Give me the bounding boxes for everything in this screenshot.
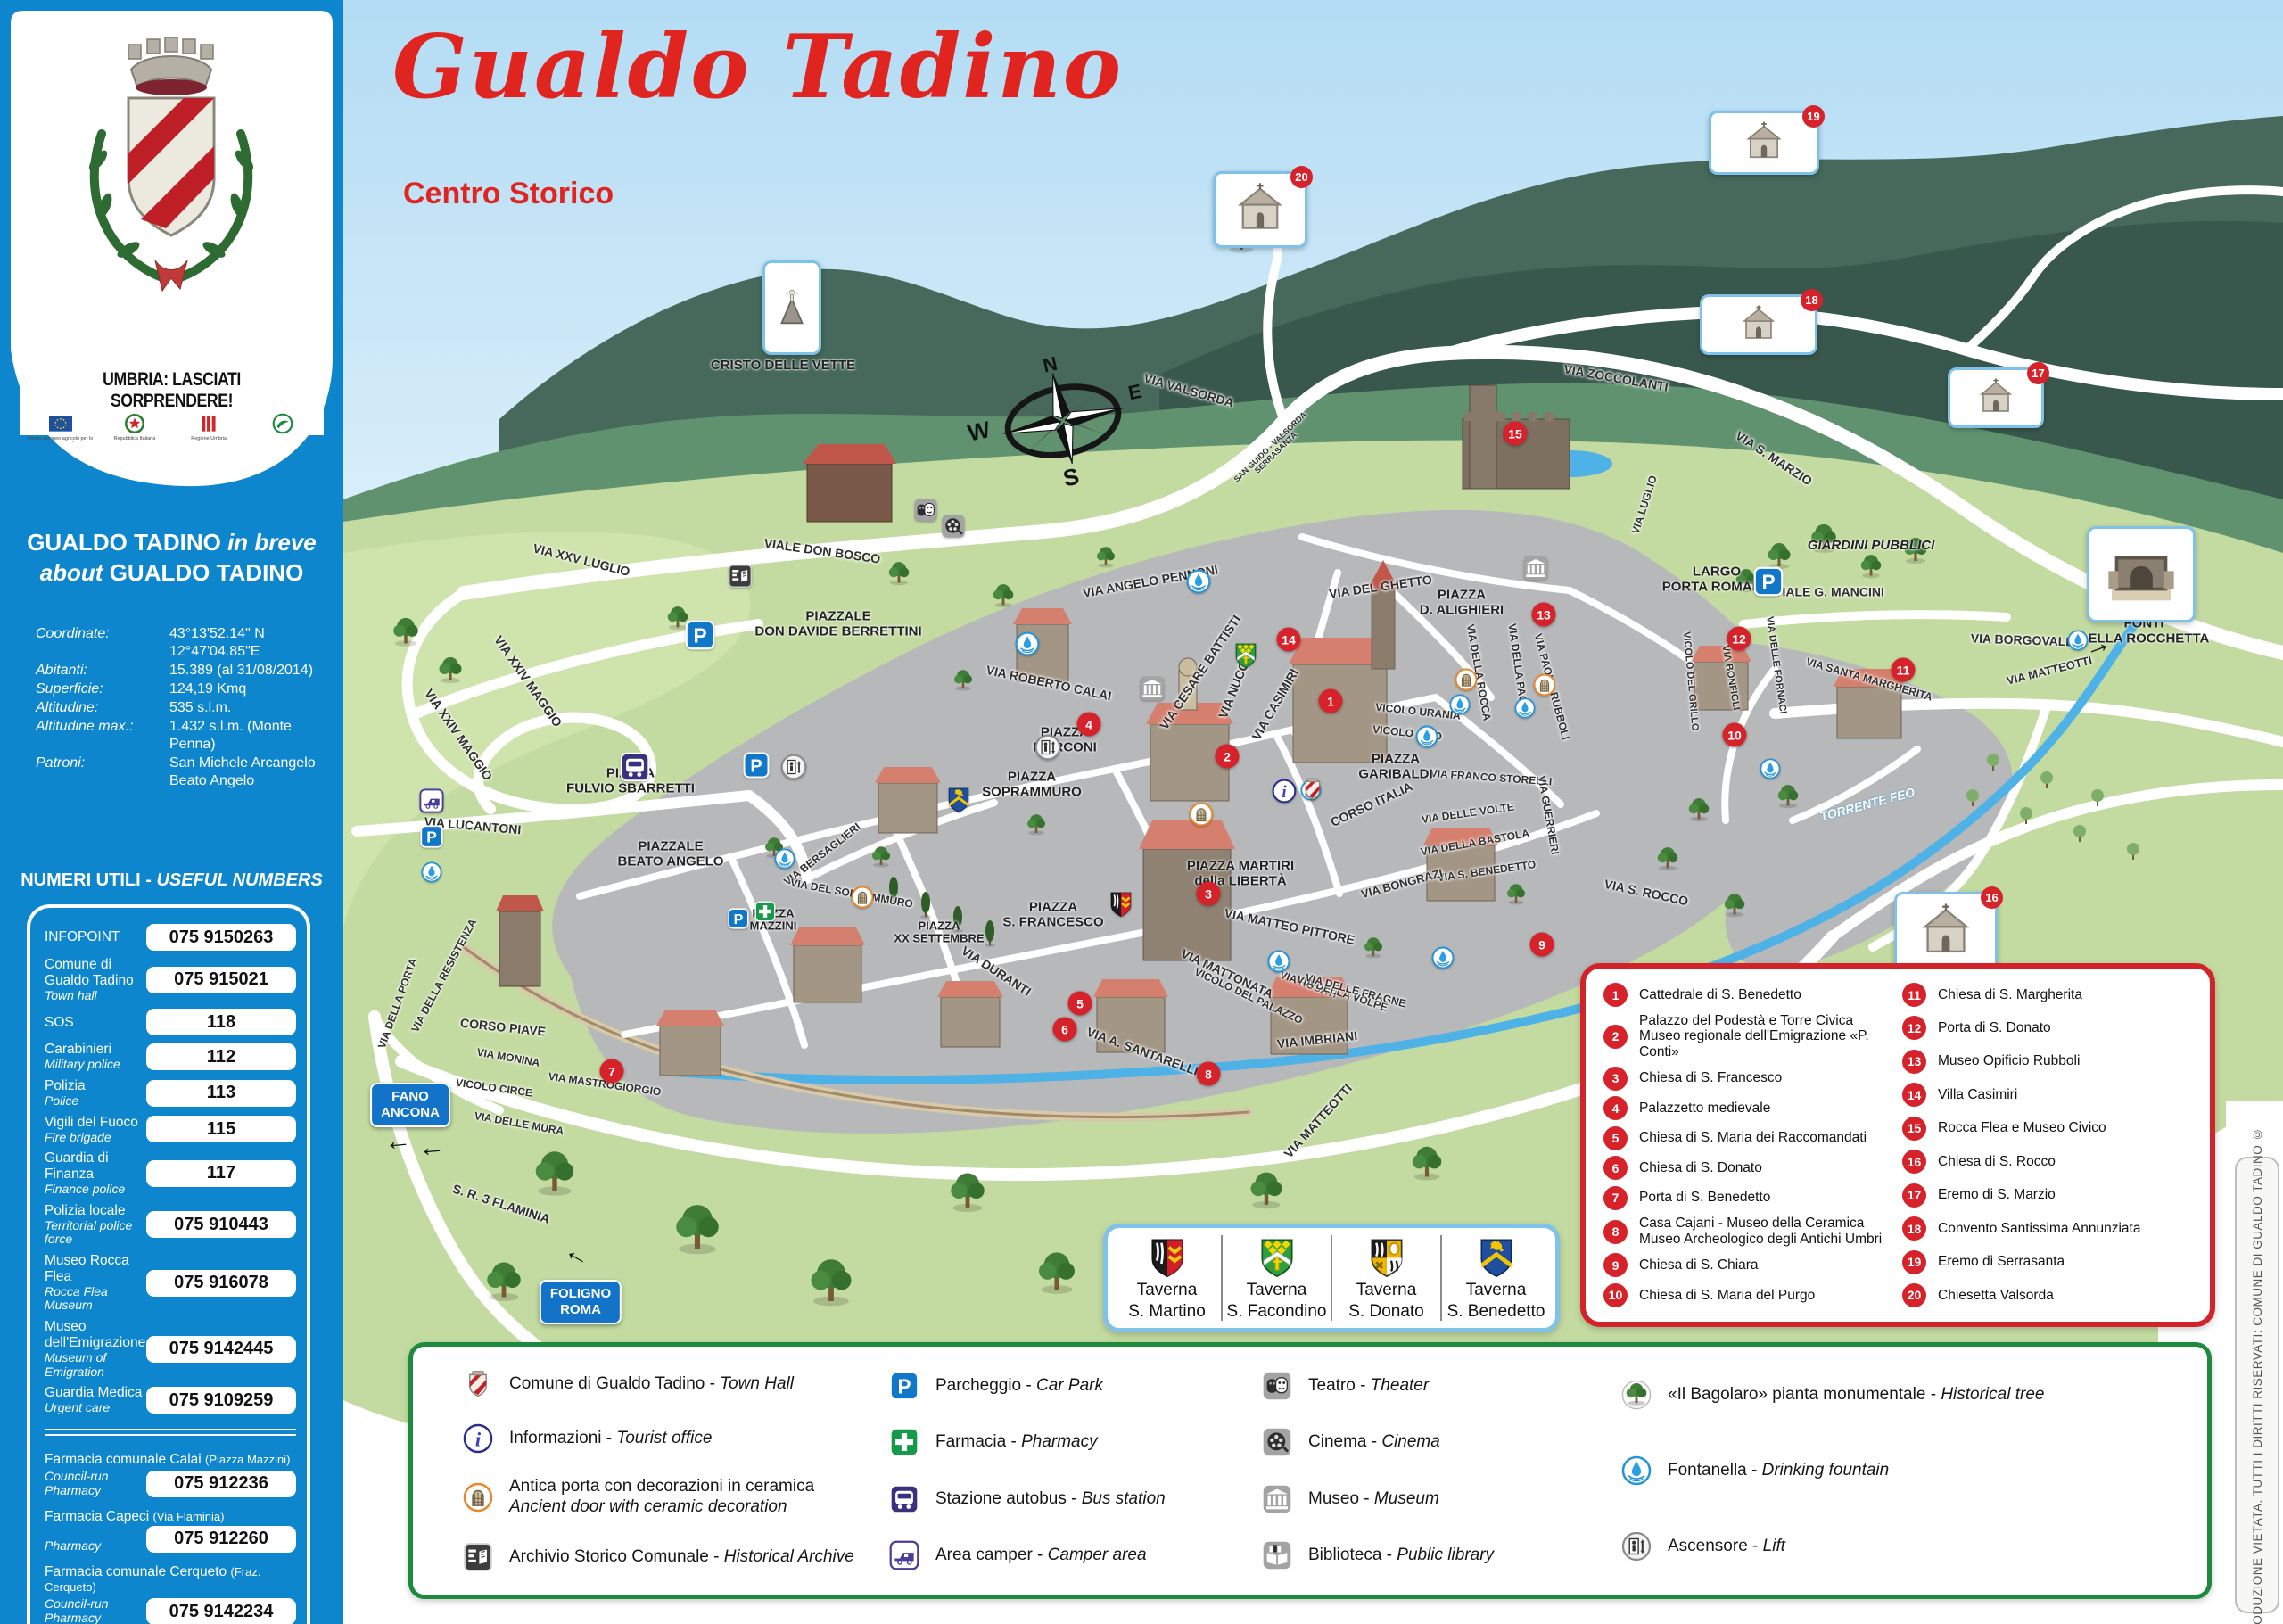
phone-entry-name: INFOPOINT — [45, 929, 120, 944]
photo-frame: 16 — [1894, 892, 1998, 972]
legend-label: Museo - Museum — [1308, 1489, 1439, 1509]
landmark-name: Chiesa di S. Donato — [1639, 1160, 1762, 1176]
street-label: VIALE G. MANCINI — [1774, 586, 1884, 599]
landmark-item: 14Villa Casimiri — [1902, 1083, 2192, 1107]
phone-entry-subtitle: Urgent care — [45, 1401, 142, 1415]
legend-label: Comune di Gualdo Tadino - Town Hall — [509, 1374, 794, 1394]
italy-emblem-logo: Repubblica Italiana — [101, 412, 169, 442]
legend-label-en: Historical Archive — [724, 1547, 854, 1566]
street-label: CORSO ITALIA — [1329, 779, 1414, 828]
statue-icon — [771, 287, 812, 328]
pharmacy-name: Farmacia comunale Cerqueto (Fraz. Cerque… — [45, 1564, 296, 1595]
street-label: VIA CASIMIRI — [1249, 666, 1301, 742]
phone-entry-name: Comune di Gualdo Tadino — [45, 957, 134, 988]
cinema-icon — [1262, 1427, 1292, 1457]
parking-icon: P — [420, 825, 443, 848]
legend-label-en: Historical tree — [1941, 1385, 2044, 1404]
city-info-row: Altitudine max.:1.432 s.l.m. (Monte Penn… — [36, 718, 330, 754]
legend-label: Teatro - Theater — [1308, 1376, 1429, 1396]
pharmacy-row: Council-run Pharmacy075 912236 — [45, 1469, 296, 1497]
parking-icon: P — [889, 1371, 919, 1401]
taverna-name: S. Facondino — [1227, 1302, 1327, 1322]
legend-label-it: Parcheggio - — [935, 1376, 1036, 1395]
door-icon — [1189, 802, 1214, 827]
landmark-item: 20Chiesetta Valsorda — [1902, 1283, 2192, 1307]
camper-icon — [889, 1540, 919, 1570]
landmark-number: 14 — [1902, 1083, 1926, 1107]
legend-label: Archivio Storico Comunale - Historical A… — [509, 1547, 854, 1567]
street-label: VIA DEL GHETTO — [1328, 573, 1432, 601]
legend-label-en: Cinema — [1381, 1432, 1439, 1451]
street-label: VIA XXV LUGLIO — [532, 541, 631, 578]
sidebar: UMBRIA: LASCIATI SORPRENDERE! Fondo euro… — [0, 0, 343, 1624]
area-label: PIAZZA XX SETTEMBRE — [894, 920, 984, 946]
landmark-number: 18 — [1902, 1216, 1926, 1241]
legend-item: Area camper - Camper area — [889, 1540, 1255, 1570]
section-divider — [45, 1429, 296, 1436]
legend-item: Cinema - Cinema — [1262, 1427, 1614, 1457]
legend-label-it: Teatro - — [1308, 1376, 1371, 1395]
area-label: PIAZZALE DON DAVIDE BERRETTINI — [754, 610, 921, 639]
landmark-number: 2 — [1603, 1025, 1628, 1049]
phone-entry-label: Comune di Gualdo TadinoTown hall — [45, 957, 146, 1002]
taverna-item: TavernaS. Facondino — [1221, 1235, 1331, 1321]
legend-label-en: Tourist office — [616, 1429, 712, 1447]
svg-text:P: P — [750, 757, 762, 777]
fountain-icon — [421, 861, 442, 883]
map-marker: 12 — [1727, 627, 1751, 651]
phone-entry: Vigili del FuocoFire brigade115 — [45, 1115, 296, 1145]
marker-badge: 20 — [1290, 166, 1313, 188]
street-label: VIA SANTA MARGHERITA — [1805, 656, 1933, 704]
landmark-item: 12Porta di S. Donato — [1902, 1016, 2192, 1040]
svg-text:P: P — [1761, 571, 1775, 594]
pharmacy-subtitle: Pharmacy — [45, 1538, 101, 1553]
city-info-value: San Michele Arcangelo Beato Angelo — [169, 754, 330, 790]
pharmacy-name: Farmacia comunale Calai (Piazza Mazzini) — [45, 1452, 296, 1467]
map-marker: 15 — [1504, 422, 1528, 446]
landmark-name: Museo Opificio Rubboli — [1938, 1053, 2080, 1069]
phone-entry-name: Museo dell'Emigrazione — [45, 1319, 145, 1350]
phone-entry-subtitle: Territorial police force — [45, 1219, 146, 1247]
landmark-name: Chiesa di S. Maria del Purgo — [1639, 1288, 1815, 1304]
about-title: GUALDO TADINO in breve about GUALDO TADI… — [0, 528, 343, 589]
street-label: VIA S. MARZIO — [1733, 429, 1814, 488]
fountain-icon — [1415, 725, 1438, 748]
phone-number: 075 9142234 — [146, 1598, 296, 1624]
svg-text:P: P — [426, 828, 437, 846]
street-label: VIA MONINA — [476, 1047, 541, 1069]
landmark-item: 2Palazzo del Podestà e Torre Civica Muse… — [1603, 1013, 1893, 1060]
legend-item: Fontanella - Drinking fountain — [1621, 1455, 2191, 1486]
legend-label: Informazioni - Tourist office — [509, 1429, 712, 1448]
theater-icon — [913, 498, 938, 523]
landmark-number: 17 — [1902, 1183, 1926, 1208]
photo-frame: 19 — [1709, 111, 1819, 175]
map-marker: 2 — [1216, 745, 1240, 769]
legend-label-en: Town Hall — [720, 1374, 794, 1393]
city-info-row: Patroni:San Michele Arcangelo Beato Ange… — [36, 754, 330, 790]
city-info-value: 1.432 s.l.m. (Monte Penna) — [169, 718, 330, 754]
church-icon — [1737, 303, 1780, 346]
phone-entry-label: INFOPOINT — [45, 929, 120, 945]
road-sign: FOLIGNOROMA — [540, 1280, 622, 1324]
taverna-item: TavernaS. Benedetto — [1440, 1235, 1550, 1321]
museum-icon — [1522, 555, 1549, 581]
fountain-icon — [1621, 1455, 1652, 1486]
landmark-item: 9Chiesa di S. Chiara — [1603, 1253, 1893, 1277]
legend-label-it: Stazione autobus - — [935, 1489, 1082, 1508]
street-label: VIA VALSORDA — [1142, 372, 1235, 410]
city-info-label: Superficie: — [36, 680, 169, 698]
phone-entry-label: Guardia di FinanzaFinance police — [45, 1150, 146, 1196]
pharmacy-location: (Via Flaminia) — [152, 1510, 224, 1523]
landmark-number: 19 — [1902, 1250, 1926, 1274]
phone-entry-name: Vigili del Fuoco — [45, 1115, 138, 1130]
area-label: CRISTO DELLE VETTE — [711, 359, 855, 374]
landmark-item: 7Porta di S. Benedetto — [1603, 1186, 1893, 1210]
pharmacy-row: Council-run Pharmacy075 9142234 — [45, 1596, 296, 1624]
legend-column: PParcheggio - Car ParkFarmacia - Pharmac… — [889, 1357, 1255, 1584]
door-icon — [1455, 668, 1478, 691]
area-label: PIAZZA SOPRAMMURO — [982, 771, 1082, 800]
phone-number: 117 — [146, 1160, 296, 1187]
landmark-name: Chiesetta Valsorda — [1938, 1288, 2054, 1304]
phone-entry-name: SOS — [45, 1015, 74, 1030]
fountain-icon — [774, 848, 795, 870]
phone-number: 075 9150263 — [146, 924, 296, 951]
phone-entry: Museo dell'EmigrazioneMuseum of Emigrati… — [45, 1319, 296, 1379]
copyright-text: PRODUZIONE VIETATA. TUTTI I DIRITTI RISE… — [2251, 1127, 2264, 1624]
landmark-item: 16Chiesa di S. Rocco — [1902, 1150, 2192, 1174]
taverna-name: S. Benedetto — [1447, 1302, 1545, 1322]
city-info-value: 43°13'52.14" N 12°47'04.85"E — [169, 625, 330, 661]
map-marker: 8 — [1197, 1062, 1221, 1086]
marker-badge: 18 — [1801, 289, 1823, 311]
city-info-label: Patroni: — [36, 754, 169, 790]
shield-martino-icon — [1109, 891, 1133, 918]
legend-item: Museo - Museum — [1262, 1484, 1614, 1514]
legend-item: Ascensore - Lift — [1621, 1531, 2191, 1562]
street-label: CORSO PIAVE — [459, 1017, 546, 1039]
area-label: PIAZZA D. ALIGHIERI — [1420, 589, 1504, 618]
direction-arrow: ← — [560, 1237, 597, 1274]
landmark-item: 5Chiesa di S. Maria dei Raccomandati — [1603, 1126, 1893, 1150]
street-label: VICOLO URANIA — [1375, 702, 1462, 722]
phone-number: 075 912236 — [146, 1471, 296, 1497]
landmark-name: Convento Santissima Annunziata — [1938, 1221, 2140, 1237]
street-label: VIA S. ROCCO — [1603, 878, 1690, 908]
legend-label-it: Museo - — [1308, 1489, 1374, 1508]
pharmacy-subtitle: Council-run Pharmacy — [45, 1469, 146, 1497]
shield-facondino-icon — [1259, 1237, 1295, 1279]
city-info-value: 535 s.l.m. — [169, 699, 330, 717]
taverna-label: Taverna — [1466, 1281, 1527, 1300]
map-marker: 14 — [1277, 628, 1301, 652]
phone-entry-subtitle: Fire brigade — [45, 1131, 138, 1145]
marker-badge: 17 — [2027, 362, 2049, 384]
pharmacy-location: (Piazza Mazzini) — [205, 1453, 290, 1466]
landmarks-column-2: 11Chiesa di S. Margherita12Porta di S. D… — [1902, 983, 2192, 1307]
legend-label-it: Cinema - — [1308, 1432, 1381, 1451]
regione-umbria-logo: Regione Umbria — [175, 412, 243, 442]
landmark-name: Eremo di S. Marzio — [1938, 1187, 2056, 1203]
shield-benedetto-icon — [947, 787, 970, 813]
cinema-icon — [941, 514, 966, 539]
phone-entry-label: SOS — [45, 1015, 74, 1031]
museum-icon — [1262, 1484, 1292, 1514]
legend-label: Ascensore - Lift — [1668, 1537, 1785, 1556]
city-info-row: Altitudine:535 s.l.m. — [36, 699, 330, 717]
legend-label-en: Public library — [1397, 1546, 1494, 1564]
taverna-shields-box: TavernaS. MartinoTavernaS. FacondinoTave… — [1103, 1224, 1560, 1332]
phone-entry: SOS118 — [45, 1009, 296, 1035]
phone-entry-label: Guardia MedicaUrgent care — [45, 1385, 142, 1415]
landmark-number: 12 — [1902, 1016, 1926, 1040]
pharmacy-subtitle: Council-run Pharmacy — [45, 1596, 146, 1624]
phone-number: 075 916078 — [146, 1270, 296, 1297]
legend-label-en: Bus station — [1082, 1489, 1166, 1508]
pharmacy-row: Pharmacy075 912260 — [45, 1526, 296, 1553]
map-marker: 3 — [1197, 882, 1221, 906]
landmark-item: 3Chiesa di S. Francesco — [1603, 1067, 1893, 1091]
legend-item: Stazione autobus - Bus station — [889, 1484, 1255, 1514]
fountain-icon — [1514, 697, 1536, 719]
lift-icon — [1621, 1531, 1652, 1562]
legend-item: iInformazioni - Tourist office — [463, 1423, 882, 1454]
fountain-icon — [1267, 950, 1290, 973]
legend-label: Farmacia - Pharmacy — [935, 1432, 1098, 1452]
taverna-label: Taverna — [1247, 1281, 1307, 1300]
landmark-name: Villa Casimiri — [1938, 1087, 2017, 1103]
landmark-number: 16 — [1902, 1150, 1926, 1174]
city-info-row: Coordinate:43°13'52.14" N 12°47'04.85"E — [36, 625, 330, 661]
road-sign-line: FOLIGNO — [550, 1286, 611, 1302]
map-marker: 6 — [1053, 1018, 1077, 1042]
phone-entry: Comune di Gualdo TadinoTown hall075 9150… — [45, 957, 296, 1002]
parking-icon: P — [743, 752, 770, 779]
street-label: VIA ZOCCOLANTI — [1562, 362, 1669, 393]
city-info-label: Altitudine: — [36, 699, 169, 717]
fonti-icon — [2102, 535, 2180, 614]
door-icon — [1533, 673, 1556, 697]
landmark-name: Casa Cajani - Museo della Ceramica Museo… — [1639, 1216, 1882, 1248]
landmark-name: Rocca Flea e Museo Civico — [1938, 1120, 2106, 1136]
pharmacy-location: (Fraz. Cerqueto) — [45, 1565, 260, 1594]
landmark-name: Chiesa di S. Margherita — [1938, 987, 2082, 1003]
landmark-name: Palazzo del Podestà e Torre Civica Museo… — [1639, 1013, 1893, 1060]
shield-facondino-icon — [1234, 642, 1257, 669]
street-label: VIA LUGLIO — [1629, 474, 1659, 536]
legend-label-it: Comune di Gualdo Tadino - — [509, 1374, 720, 1393]
area-label: GIARDINI PUBBLICI — [1808, 539, 1935, 554]
street-label: VIA GUERRIERI — [1536, 775, 1561, 855]
phone-number: 118 — [146, 1009, 296, 1035]
phone-number: 113 — [146, 1080, 296, 1107]
pharmacy-icon — [889, 1427, 919, 1457]
useful-numbers-box: INFOPOINT075 9150263Comune di Gualdo Tad… — [27, 904, 310, 1624]
phone-entry: Polizia localeTerritorial police force07… — [45, 1203, 296, 1247]
umbria-banner-title: UMBRIA: LASCIATI SORPRENDERE! — [23, 369, 320, 412]
landmark-name: Palazzetto medievale — [1639, 1101, 1770, 1117]
library-icon — [1262, 1540, 1292, 1570]
phone-entry: Museo Rocca FleaRocca Flea Museum075 916… — [45, 1253, 296, 1313]
landmark-number: 20 — [1902, 1283, 1926, 1307]
taverna-item: TavernaS. Martino — [1113, 1235, 1221, 1321]
phone-entry-subtitle: Military police — [45, 1058, 120, 1072]
landmark-name: Porta di S. Benedetto — [1639, 1190, 1770, 1206]
landmark-number: 8 — [1603, 1220, 1628, 1244]
marker-badge: 16 — [1981, 886, 2003, 909]
landmark-name: Chiesa di S. Rocco — [1938, 1154, 2056, 1170]
fountain-icon — [1760, 758, 1781, 779]
landmark-name: Eremo di Serrasanta — [1938, 1254, 2065, 1270]
phone-number: 075 9109259 — [146, 1387, 296, 1414]
legend-item: Biblioteca - Public library — [1262, 1540, 1614, 1570]
regione-umbria-icon — [197, 412, 220, 435]
phone-entry-name: Carabinieri — [45, 1042, 111, 1057]
tree-icon — [1621, 1380, 1652, 1410]
svg-text:P: P — [693, 624, 706, 647]
legend-label: Fontanella - Drinking fountain — [1668, 1461, 1889, 1480]
city-info-label: Coordinate: — [36, 625, 169, 661]
street-label: VIA DELLE VOLTE — [1421, 801, 1514, 825]
direction-arrow: ← — [383, 1127, 413, 1157]
taverna-label: Taverna — [1356, 1281, 1417, 1300]
street-label: SAN GUIDO - VALSORDA SERRASANTA — [1232, 410, 1314, 490]
city-info-row: Abitanti:15.389 (al 31/08/2014) — [36, 662, 330, 680]
landmark-item: 1Cattedrale di S. Benedetto — [1603, 983, 1893, 1007]
legend-item: PParcheggio - Car Park — [889, 1371, 1255, 1401]
landmark-number: 4 — [1603, 1096, 1628, 1120]
legend-label-en: Car Park — [1036, 1376, 1103, 1395]
photo-frame — [762, 260, 821, 355]
museum-icon — [1139, 675, 1166, 702]
landmark-number: 15 — [1902, 1117, 1926, 1141]
phone-entry-name: Museo Rocca Flea — [45, 1253, 129, 1284]
legend-item: Teatro - Theater — [1262, 1371, 1614, 1401]
svg-text:P: P — [897, 1374, 911, 1397]
phone-entry-subtitle: Rocca Flea Museum — [45, 1285, 146, 1313]
landmark-item: 15Rocca Flea e Museo Civico — [1902, 1117, 2192, 1141]
direction-arrow: ← — [417, 1134, 447, 1163]
taverna-name: S. Donato — [1348, 1302, 1424, 1322]
rural-network-icon — [271, 412, 294, 435]
door-icon — [851, 886, 874, 909]
legend-label: Parcheggio - Car Park — [935, 1376, 1103, 1396]
eu-flag-icon — [49, 412, 72, 435]
taverna-label: Taverna — [1137, 1281, 1198, 1300]
phone-number: 075 912260 — [146, 1526, 296, 1553]
phone-entry-label: Museo Rocca FleaRocca Flea Museum — [45, 1253, 146, 1313]
street-label: VICOLO DEL GRILLO — [1680, 631, 1699, 731]
landmark-item: 6Chiesa di S. Donato — [1603, 1156, 1893, 1180]
legend-label: Stazione autobus - Bus station — [935, 1489, 1166, 1509]
phone-entry-name: Guardia Medica — [45, 1385, 142, 1400]
legend-label-it: Farmacia - — [935, 1432, 1021, 1451]
shield-benedetto-icon — [1479, 1237, 1514, 1279]
logo-caption: Fondo europeo agricolo per lo sviluppo r… — [27, 436, 95, 442]
street-label: VIA DELLE MURA — [474, 1110, 565, 1137]
map-marker: 7 — [600, 1059, 624, 1084]
photo-frame — [2087, 526, 2196, 622]
street-label: VIA MATTEOTTI — [1282, 1082, 1355, 1160]
phone-entry-label: Vigili del FuocoFire brigade — [45, 1115, 138, 1145]
street-label: S. R. 3 FLAMINIA — [451, 1182, 552, 1225]
landmark-name: Chiesa di S. Francesco — [1639, 1070, 1782, 1086]
street-label: VIA FRANCO STORELLI — [1430, 768, 1552, 787]
shield-donato-icon — [1369, 1237, 1405, 1279]
church-icon — [1231, 180, 1290, 239]
phone-entry-subtitle: Finance police — [45, 1183, 146, 1197]
legend-label-en: Camper area — [1048, 1546, 1147, 1564]
phone-entry-label: CarabinieriMilitary police — [45, 1042, 120, 1072]
landmark-number: 1 — [1603, 983, 1628, 1007]
landmark-item: 11Chiesa di S. Margherita — [1902, 983, 2192, 1007]
italy-emblem-icon — [123, 412, 146, 435]
landmark-number: 5 — [1603, 1126, 1628, 1150]
phone-number: 075 9142445 — [146, 1336, 296, 1363]
street-label: VIA MATTEOTTI — [2006, 655, 2094, 688]
umbria-banner: UMBRIA: LASCIATI SORPRENDERE! Fondo euro… — [20, 364, 324, 435]
phone-entry: PoliziaPolice113 — [45, 1078, 296, 1109]
shield-martino-icon — [1150, 1237, 1185, 1279]
marker-badge: 19 — [1802, 105, 1825, 128]
photo-frame: 17 — [1948, 367, 2044, 428]
area-label: PIAZZA S. FRANCESCO — [1002, 901, 1103, 930]
bus-icon — [889, 1484, 919, 1514]
landmark-number: 7 — [1603, 1186, 1628, 1210]
street-label: VIA A. SANTARELLI — [1085, 1026, 1200, 1078]
map-marker: 11 — [1892, 658, 1916, 682]
legend-label: Cinema - Cinema — [1308, 1432, 1440, 1452]
crest-icon — [1300, 777, 1325, 802]
road-sign-line: ROMA — [550, 1302, 611, 1318]
landmark-name: Chiesa di S. Chiara — [1639, 1257, 1759, 1274]
landmark-item: 8Casa Cajani - Museo della Ceramica Muse… — [1603, 1216, 1893, 1248]
road-sign-line: ANCONA — [381, 1105, 440, 1121]
lift-icon — [1034, 734, 1061, 761]
phone-entry-name: Polizia locale — [45, 1203, 125, 1218]
legend-item: «Il Bagolaro» pianta monumentale - Histo… — [1621, 1380, 2191, 1410]
pharmacy-entry: Farmacia Capeci (Via Flaminia)Pharmacy07… — [45, 1509, 296, 1553]
useful-numbers-title: NUMERI UTILI - USEFUL NUMBERS — [0, 870, 343, 891]
landmark-item: 13Museo Opificio Rubboli — [1902, 1050, 2192, 1074]
svg-text:i: i — [1282, 783, 1287, 802]
phone-entry-subtitle: Town hall — [45, 989, 146, 1003]
legend-label-it: Informazioni - — [509, 1429, 616, 1447]
map-marker: 10 — [1723, 723, 1747, 747]
phone-entry: INFOPOINT075 9150263 — [45, 924, 296, 951]
legend-column: Comune di Gualdo Tadino - Town HalliInfo… — [463, 1357, 882, 1584]
fountain-icon — [1449, 694, 1471, 715]
city-info-value: 124,19 Kmq — [169, 680, 330, 698]
phone-number: 112 — [146, 1043, 296, 1070]
landmarks-legend: 1Cattedrale di S. Benedetto2Palazzo del … — [1580, 963, 2215, 1327]
landmark-item: 17Eremo di S. Marzio — [1902, 1183, 2192, 1208]
legend-item: Antica porta con decorazioni in ceramica… — [463, 1477, 882, 1518]
landmarks-column-1: 1Cattedrale di S. Benedetto2Palazzo del … — [1603, 983, 1893, 1307]
street-label: VIA BONGRAZI — [1360, 867, 1444, 901]
umbria-logos: Fondo europeo agricolo per lo sviluppo r… — [23, 412, 320, 442]
fountain-icon — [1431, 946, 1455, 969]
phone-entry: Guardia di FinanzaFinance police117 — [45, 1150, 296, 1196]
legend-label-en: Drinking fountain — [1762, 1461, 1890, 1480]
phone-entry: CarabinieriMilitary police112 — [45, 1042, 296, 1072]
parking-icon: P — [685, 620, 715, 650]
road-sign-line: FANO — [381, 1089, 440, 1105]
phone-entry: Guardia MedicaUrgent care075 9109259 — [45, 1385, 296, 1415]
